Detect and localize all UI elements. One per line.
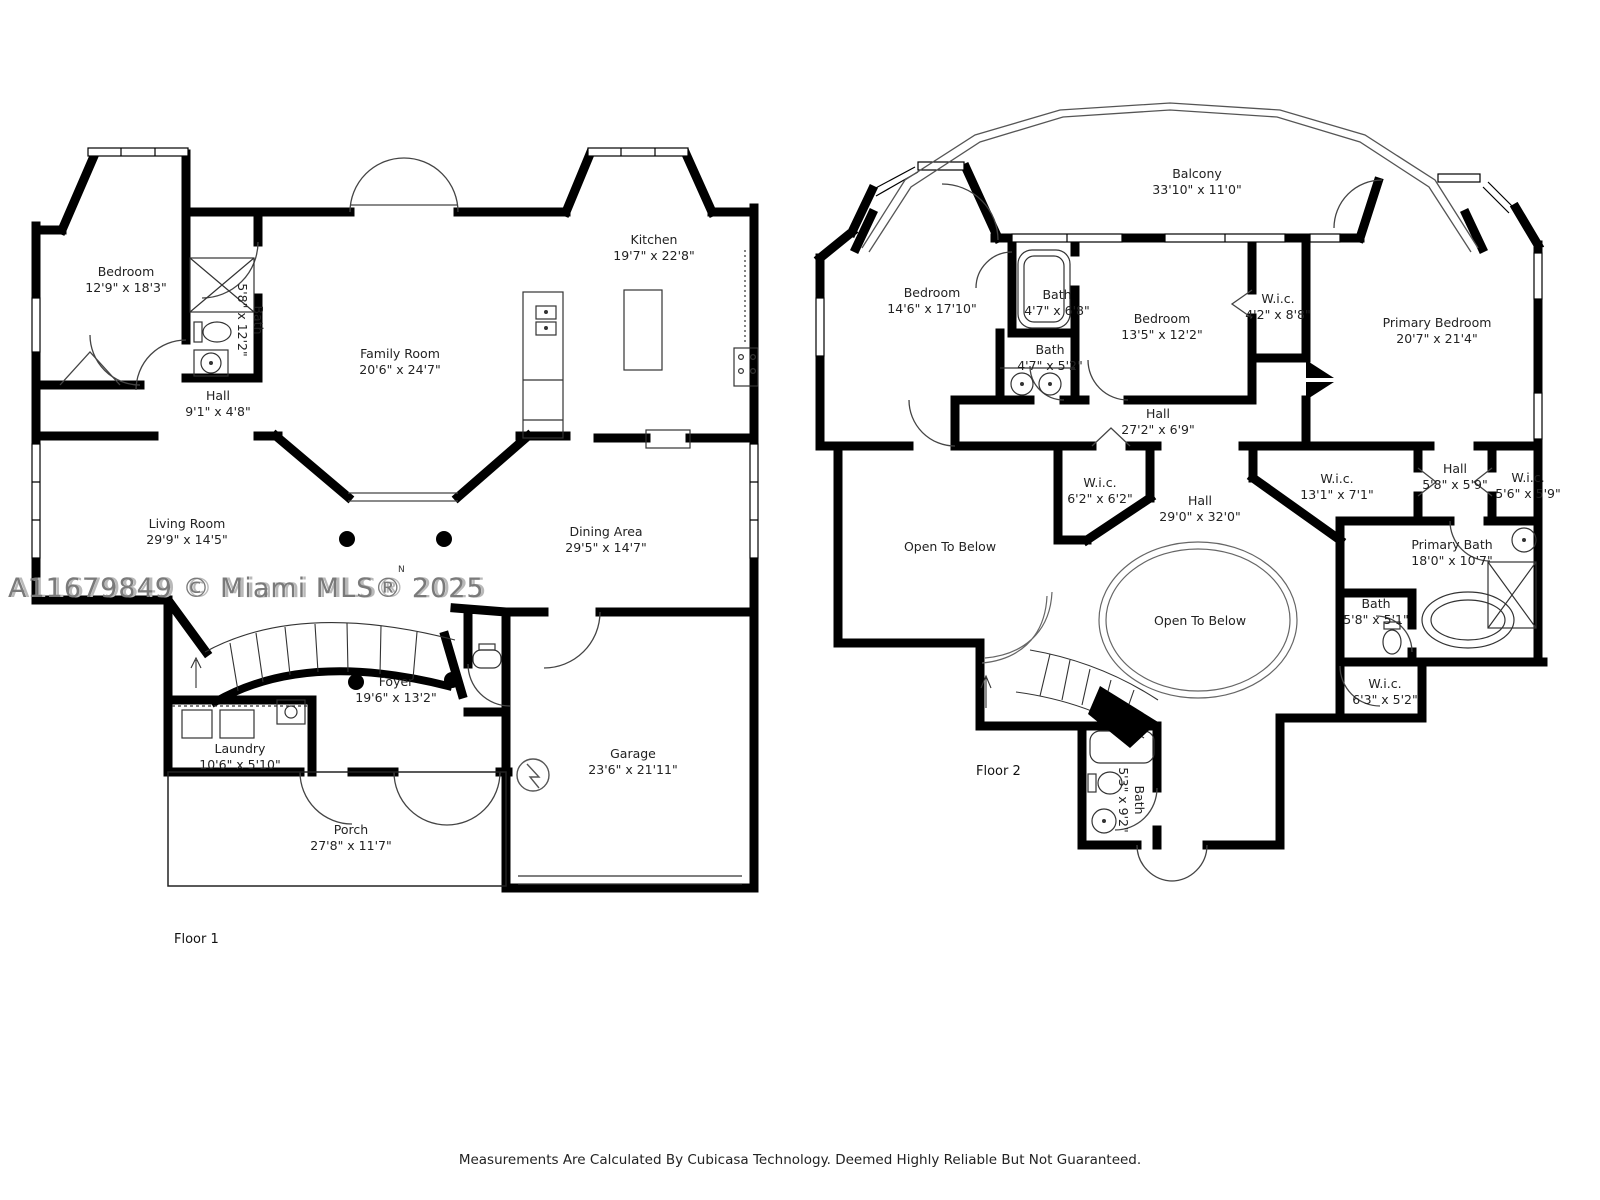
room-label-primary-bedroom: Primary Bedroom 20'7" x 21'4"	[1383, 315, 1492, 347]
measurement-disclaimer: Measurements Are Calculated By Cubicasa …	[0, 1152, 1600, 1168]
room-label-bedroom2-f2: Bedroom 14'6" x 17'10"	[887, 285, 976, 317]
electrical-symbol-icon	[517, 759, 549, 791]
room-label-porch: Porch 27'8" x 11'7"	[310, 822, 391, 854]
room-label-kitchen: Kitchen 19'7" x 22'8"	[613, 232, 694, 264]
room-label-family-room: Family Room 20'6" x 24'7"	[359, 346, 440, 378]
room-label-wic-56: W.i.c. 5'6" x 5'9"	[1495, 470, 1561, 502]
room-label-bedroom3-f2: Bedroom 13'5" x 12'2"	[1121, 311, 1202, 343]
room-label-bath-58: Bath 5'8" x 5'1"	[1343, 596, 1409, 628]
room-label-hall-f1: Hall 9'1" x 4'8"	[185, 388, 251, 420]
room-label-balcony: Balcony 33'10" x 11'0"	[1152, 166, 1241, 198]
room-label-bath-f1: Bath 5'8" x 12'2"	[234, 283, 266, 356]
floorplan-page: Bedroom 12'9" x 18'3" Bath 5'8" x 12'2" …	[0, 0, 1600, 1200]
room-label-wic-131: W.i.c. 13'1" x 7'1"	[1300, 471, 1373, 503]
room-label-primary-bath: Primary Bath 18'0" x 10'7"	[1411, 537, 1492, 569]
room-label-garage: Garage 23'6" x 21'11"	[588, 746, 677, 778]
room-label-wic-63: W.i.c. 6'3" x 5'2"	[1352, 676, 1418, 708]
room-label-bath-53: Bath 5'3" x 9'2"	[1115, 767, 1147, 833]
floor2-stairs	[981, 650, 1158, 748]
room-label-dining-area: Dining Area 29'5" x 14'7"	[565, 524, 646, 556]
room-label-wic-62: W.i.c. 6'2" x 6'2"	[1067, 475, 1133, 507]
room-label-bath-sinks-f2: Bath 4'7" x 5'2"	[1017, 342, 1083, 374]
floor2-open-to-below-oval	[982, 542, 1297, 698]
room-label-bath-tub-f2: Bath 4'7" x 6'8"	[1024, 287, 1090, 319]
room-label-wic-small-f2: W.i.c. 4'2" x 8'8"	[1245, 291, 1311, 323]
room-label-open-to-below-left: Open To Below	[904, 539, 996, 555]
room-label-open-to-below-center: Open To Below	[1154, 613, 1246, 629]
mls-watermark: A11679849 © Miami MLS® 2025	[8, 573, 485, 604]
floor1-columns	[339, 531, 460, 690]
room-label-foyer: Foyer 19'6" x 13'2"	[355, 674, 436, 706]
floor2-label: Floor 2	[976, 764, 1021, 779]
room-label-hall-small-f2: Hall 5'8" x 5'9"	[1422, 461, 1488, 493]
floor1-doors	[60, 158, 600, 825]
floor1-label: Floor 1	[174, 932, 219, 947]
room-label-bedroom-f1: Bedroom 12'9" x 18'3"	[85, 264, 166, 296]
room-label-laundry: Laundry 10'6" x 5'10"	[199, 741, 280, 773]
room-label-hall-corridor-f2: Hall 27'2" x 6'9"	[1121, 406, 1194, 438]
room-label-living-room: Living Room 29'9" x 14'5"	[146, 516, 227, 548]
room-label-hall-main-f2: Hall 29'0" x 32'0"	[1159, 493, 1240, 525]
